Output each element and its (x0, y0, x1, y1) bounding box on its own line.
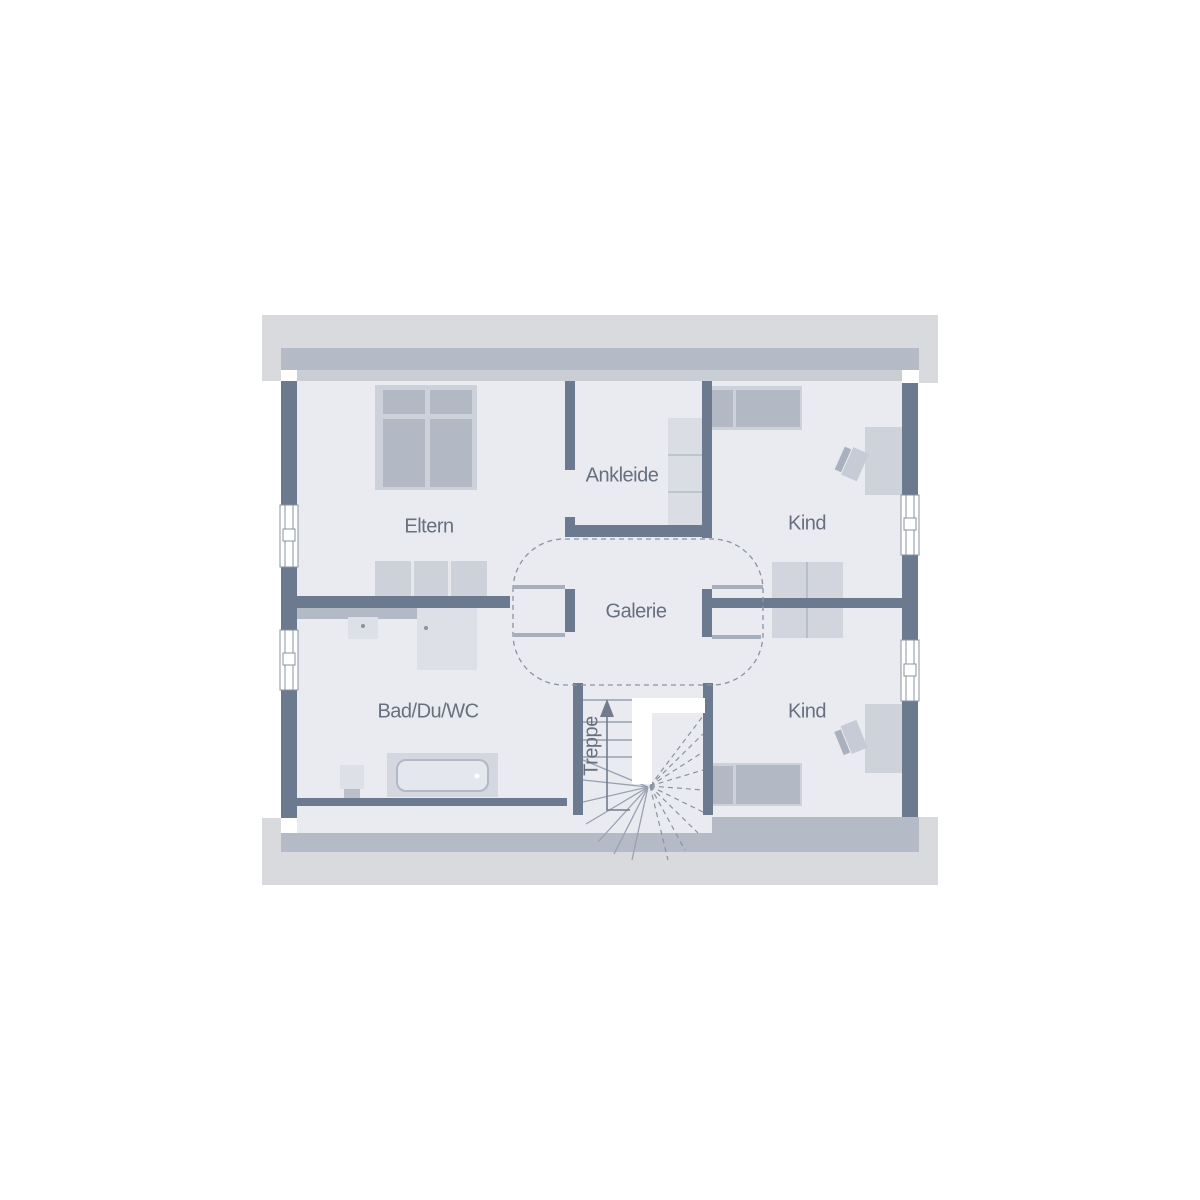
wall-ankleide-bottom (565, 525, 712, 537)
room-label-eltern: Eltern (404, 516, 453, 539)
door-leaf (514, 585, 565, 589)
desk (865, 427, 902, 495)
window (901, 495, 919, 555)
wc (340, 765, 364, 789)
room-label-kind-top: Kind (788, 513, 826, 536)
wall-ankleide-kind (702, 381, 712, 538)
room-label-bad: Bad/Du/WC (377, 701, 478, 724)
wall-bad-bottom (295, 798, 567, 806)
wall-galerie-right (702, 589, 712, 637)
furniture-ankleide (668, 418, 702, 525)
wardrobe (668, 418, 702, 525)
door-leaf (712, 635, 761, 639)
door-leaf (514, 633, 565, 637)
window (280, 630, 298, 690)
door-leaf (712, 585, 763, 589)
wall-kind-kind (712, 598, 902, 608)
wall-eltern-bad (297, 596, 510, 608)
room-label-kind-bottom: Kind (788, 701, 826, 724)
shower (417, 599, 477, 670)
wall-eltern-ankleide-upper (565, 381, 575, 470)
window (280, 505, 298, 567)
floorplan-canvas: Eltern Ankleide Kind Galerie Bad/Du/WC K… (0, 0, 1200, 1200)
wall-galerie-left (565, 589, 575, 632)
room-label-ankleide: Ankleide (586, 465, 659, 488)
room-label-treppe: Treppe (581, 716, 604, 776)
room-label-galerie: Galerie (606, 601, 667, 624)
window (901, 640, 919, 701)
desk (865, 704, 902, 773)
exterior-wall-left (281, 381, 297, 818)
floorplan-drawing (0, 0, 1200, 1200)
exterior-wall-right (902, 383, 918, 817)
sideboard (375, 561, 487, 597)
top-knee-wall-section (281, 348, 919, 381)
